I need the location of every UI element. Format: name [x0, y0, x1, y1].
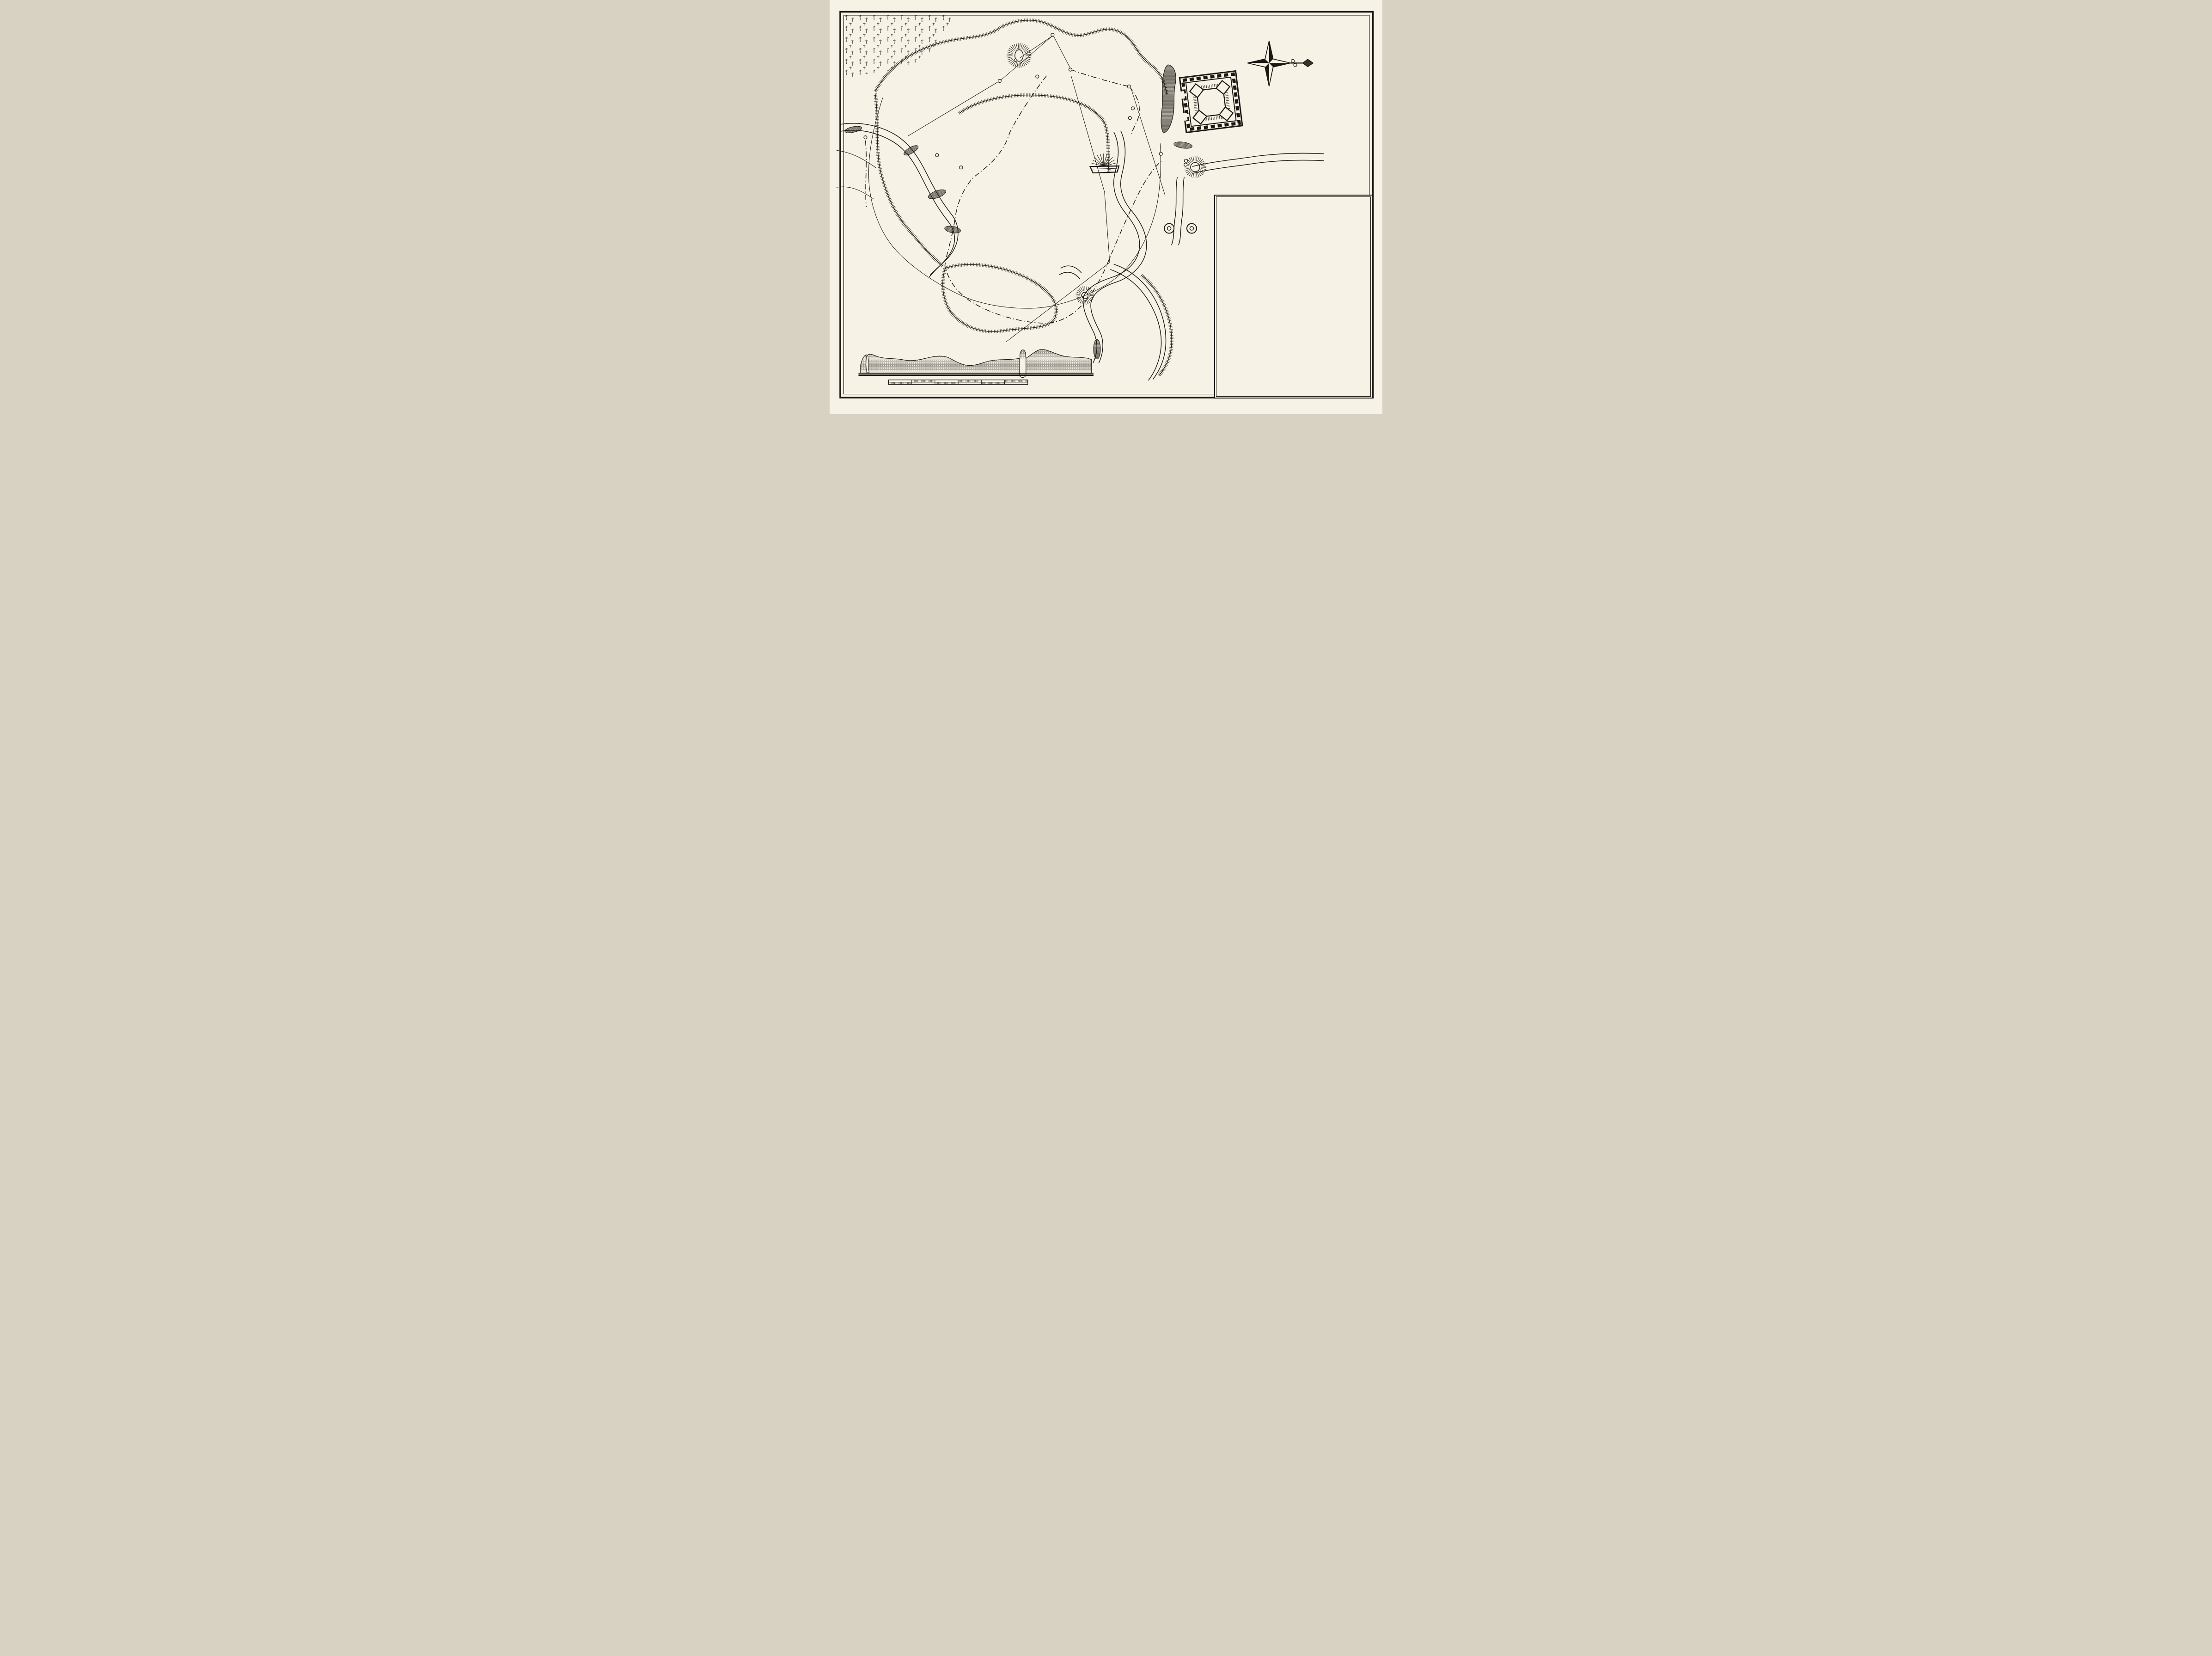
ridge-hills	[875, 20, 1172, 376]
cross-section	[858, 350, 1094, 378]
compass-rose	[1247, 41, 1313, 86]
forest-area	[844, 15, 953, 80]
fortress-a	[1177, 71, 1242, 133]
scale-bar	[888, 380, 1027, 385]
hill-karaulnaya-c	[1187, 159, 1204, 175]
ravine-k	[1110, 264, 1166, 380]
lake-b	[1161, 65, 1176, 133]
survey-lines	[864, 33, 1165, 342]
legend-box	[1214, 195, 1373, 399]
legend-inner	[1216, 196, 1371, 397]
hill-north	[1009, 46, 1028, 65]
river-solyanka-west	[837, 123, 961, 278]
engraved-map-page	[830, 0, 1382, 414]
